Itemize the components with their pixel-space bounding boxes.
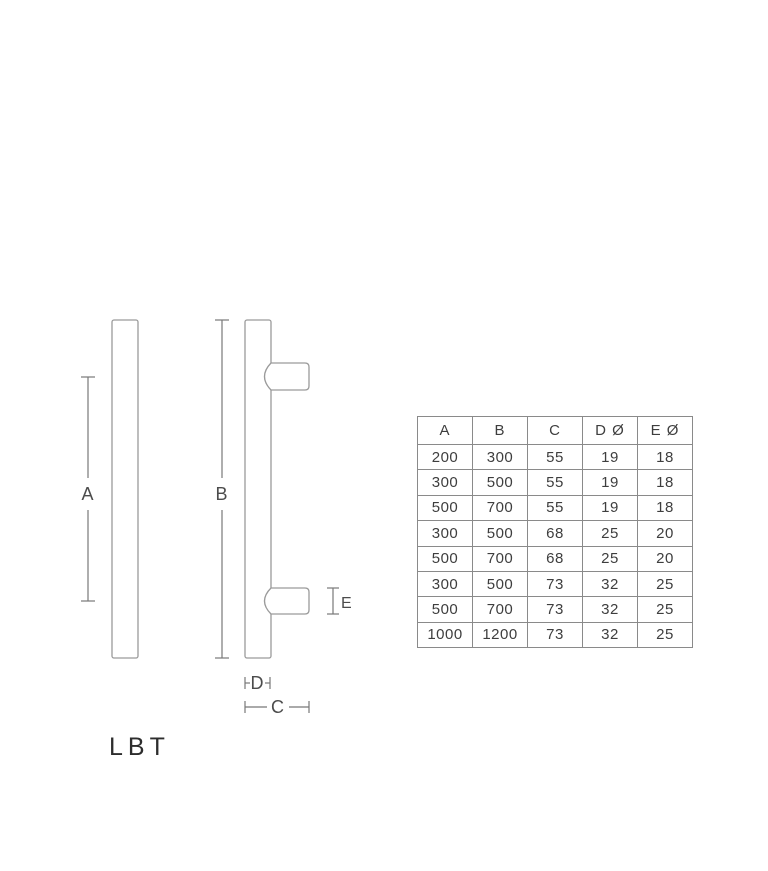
spec-table-cell: 20 [638,546,693,571]
spec-table-row: 10001200733225 [418,622,693,647]
spec-table-cell: 55 [528,470,583,495]
spec-table-row: 500700682520 [418,546,693,571]
spec-table-cell: 700 [473,546,528,571]
spec-column-header: A [418,417,473,445]
product-name-label: LBT [109,733,170,762]
spec-table-cell: 500 [473,521,528,546]
spec-table-cell: 500 [418,546,473,571]
spec-table-cell: 500 [418,597,473,622]
spec-table-cell: 25 [638,622,693,647]
spec-table-body: 2003005519183005005519185007005519183005… [418,445,693,648]
spec-table-row: 300500733225 [418,571,693,596]
spec-table-container: ABCD ØE Ø 200300551918300500551918500700… [417,416,693,648]
spec-table-cell: 19 [583,495,638,520]
spec-table-cell: 25 [638,597,693,622]
mounting-post-top [265,363,310,390]
spec-table-cell: 500 [418,495,473,520]
spec-table-cell: 55 [528,445,583,470]
spec-table-row: 300500682520 [418,521,693,546]
spec-table-cell: 500 [473,470,528,495]
spec-table-cell: 1000 [418,622,473,647]
spec-table-cell: 73 [528,597,583,622]
spec-table-cell: 200 [418,445,473,470]
spec-table-cell: 55 [528,495,583,520]
spec-table-cell: 700 [473,597,528,622]
spec-sheet-page: A B E D [0,0,768,871]
spec-table-cell: 19 [583,445,638,470]
spec-table-row: 200300551918 [418,445,693,470]
spec-table-cell: 25 [583,521,638,546]
spec-table-cell: 300 [473,445,528,470]
spec-table-header: ABCD ØE Ø [418,417,693,445]
spec-column-header: D Ø [583,417,638,445]
spec-table-cell: 25 [583,546,638,571]
dim-label-c: C [271,697,285,717]
spec-table-cell: 300 [418,521,473,546]
spec-table-cell: 300 [418,470,473,495]
spec-table-cell: 73 [528,622,583,647]
spec-table-cell: 700 [473,495,528,520]
spec-table-row: 500700733225 [418,597,693,622]
dim-label-b: B [215,484,228,504]
spec-table-cell: 18 [638,470,693,495]
dim-label-d: D [251,673,265,693]
spec-table-cell: 25 [638,571,693,596]
front-view-bar [112,320,138,658]
spec-column-header: C [528,417,583,445]
spec-table-cell: 73 [528,571,583,596]
dim-label-e: E [341,595,352,612]
front-view-handle [112,320,138,658]
spec-table-cell: 18 [638,495,693,520]
spec-table-cell: 32 [583,622,638,647]
spec-table-cell: 1200 [473,622,528,647]
spec-table-cell: 32 [583,571,638,596]
spec-table-cell: 500 [473,571,528,596]
spec-column-header: B [473,417,528,445]
spec-table-cell: 32 [583,597,638,622]
spec-table-cell: 20 [638,521,693,546]
spec-table-cell: 68 [528,521,583,546]
dimension-e [327,588,339,614]
spec-table-cell: 68 [528,546,583,571]
spec-table-cell: 18 [638,445,693,470]
spec-table-cell: 19 [583,470,638,495]
spec-table-row: 500700551918 [418,495,693,520]
spec-table-cell: 300 [418,571,473,596]
spec-table-row: 300500551918 [418,470,693,495]
spec-table: ABCD ØE Ø 200300551918300500551918500700… [417,416,693,648]
dim-label-a: A [81,484,94,504]
mounting-post-bottom [265,588,310,614]
side-view-handle [245,320,309,658]
spec-column-header: E Ø [638,417,693,445]
